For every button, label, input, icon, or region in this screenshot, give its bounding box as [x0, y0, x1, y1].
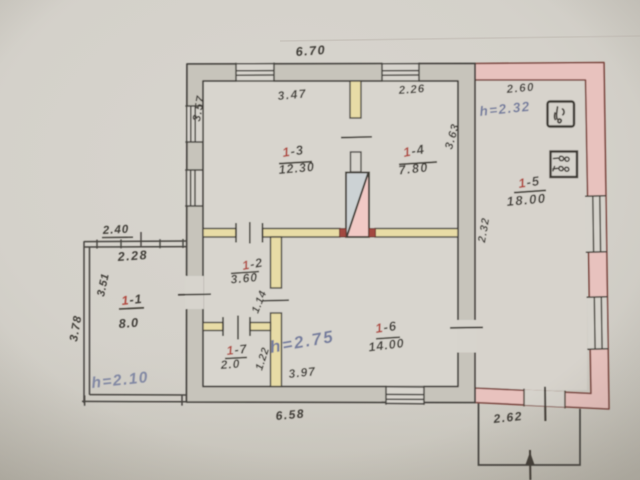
svg-text:3.60: 3.60: [230, 270, 258, 286]
svg-text:1-3: 1-3: [281, 142, 305, 160]
svg-text:6.70: 6.70: [295, 43, 326, 59]
svg-text:6.58: 6.58: [275, 406, 305, 423]
svg-text:3.47: 3.47: [277, 86, 307, 103]
svg-text:2.0: 2.0: [219, 357, 241, 372]
svg-text:1-1: 1-1: [121, 292, 143, 308]
svg-text:2.28: 2.28: [116, 248, 148, 264]
svg-text:3.97: 3.97: [288, 364, 317, 381]
svg-text:2.26: 2.26: [397, 83, 425, 97]
svg-text:2.40: 2.40: [102, 224, 130, 237]
svg-text:1-5: 1-5: [517, 173, 541, 191]
svg-text:1-7: 1-7: [226, 342, 248, 358]
svg-text:2.60: 2.60: [505, 82, 535, 97]
svg-text:1-6: 1-6: [374, 318, 398, 336]
svg-text:8.0: 8.0: [118, 316, 139, 331]
